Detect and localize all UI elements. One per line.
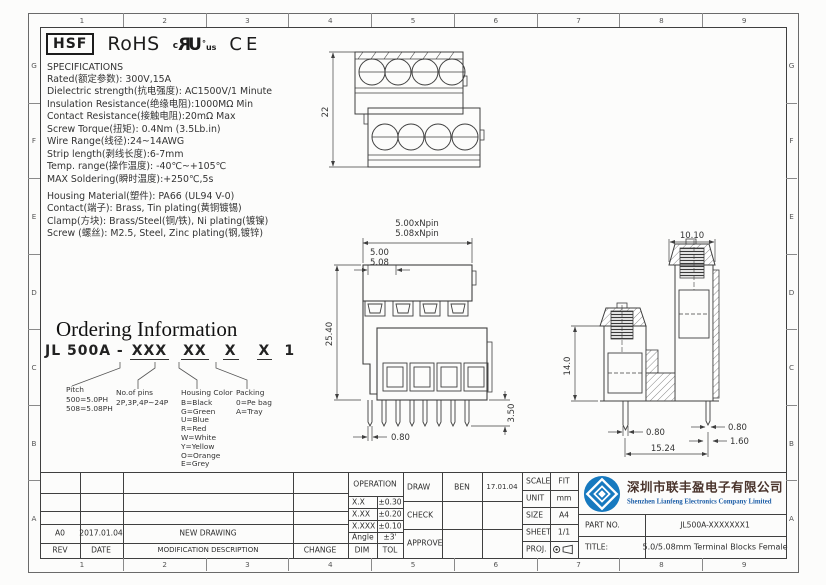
front-view-drawing: 5.00xNpin 5.08xNpin 5.00 5.08 [320, 216, 535, 471]
rev-value: A0 [55, 529, 65, 538]
pitch-legend-item: 508=5.08PH [66, 405, 113, 414]
tol-label: X.XXX [352, 522, 375, 531]
materials-list: Housing Material(塑件): PA66 (UL94 V-0)Con… [47, 191, 268, 241]
dim-top-height: 22 [321, 107, 331, 118]
grid-col-label: 2 [123, 13, 206, 27]
grid-col-label: 9 [702, 558, 785, 571]
ordering-legend-housing: Housing ColorB=BlackG=GreenU=BlueR=RedW=… [181, 389, 233, 469]
spec-line: MAX Soldering(瞬时温度):+250℃,5s [47, 174, 272, 186]
dim-footer: DIM [355, 546, 370, 555]
packing-legend-item: A=Tray [236, 408, 272, 417]
dim-side-row-pitch: 15.24 [651, 444, 675, 454]
grid-col-label: 5 [371, 13, 454, 27]
unit-label: UNIT [526, 494, 544, 503]
grid-col-label: 9 [702, 13, 785, 27]
ordering-title: Ordering Information [56, 317, 237, 342]
grid-row-label: G [28, 28, 40, 103]
dim-front-pin-length: 3.50 [507, 404, 517, 423]
grid-row-label: F [28, 103, 40, 179]
dim-pitch-total-1: 5.00xNpin [395, 219, 438, 229]
spec-line: Temp. range(操作温度): -40℃~+105℃ [47, 161, 272, 173]
tol-label: X.X [352, 498, 365, 507]
doc-title-label: TITLE: [585, 543, 608, 552]
doc-title-value: 5.0/5.08mm Terminal Blocks Female [643, 543, 788, 552]
spec-line: Screw Torque(扭矩): 0.4Nm (3.5Lb.in) [47, 124, 272, 136]
scale-label: SCALE [526, 477, 550, 486]
specifications-list: Rated(额定参数): 300V,15ADielectric strength… [47, 74, 272, 186]
grid-row-label: G [786, 28, 797, 103]
spec-line: Rated(额定参数): 300V,15A [47, 74, 272, 86]
grid-col-label: 7 [537, 13, 620, 27]
tol-value: ±0.30 [378, 498, 401, 507]
grid-col-label: 4 [288, 558, 371, 571]
spec-line: Strip length(剥线长度):6-7mm [47, 149, 272, 161]
tol-label: Angle [352, 533, 374, 542]
drawing-sheet: 123456789 123456789 GFEDCBA GFEDCBA HSF … [0, 0, 826, 585]
rev-header: REV [52, 546, 67, 555]
sheet-value: 1/1 [558, 528, 570, 537]
pitch-legend-title: Pitch [66, 386, 113, 395]
grid-col-label: 8 [619, 558, 702, 571]
rev-desc: NEW DRAWING [179, 529, 236, 538]
part-no-value: JL500A-XXXXXXX1 [680, 521, 750, 530]
ul-recognized-icon: cRU°us [173, 34, 217, 54]
grid-col-label: 6 [454, 558, 537, 571]
size-label: SIZE [526, 511, 543, 520]
company-logo [583, 475, 621, 513]
dim-pitch-1: 5.00 [370, 248, 389, 258]
housing-legend-title: Housing Color [181, 389, 233, 398]
ordering-legend-pitch: Pitch500=5.0PH508=5.08PH [66, 386, 113, 413]
hsf-logo: HSF [46, 33, 94, 55]
tolerance-title: OPERATION [353, 480, 396, 489]
spec-line: Dielectric strength(抗电强度): AC1500V/1 Min… [47, 86, 272, 98]
dim-pitch-2: 5.08 [370, 258, 389, 268]
grid-row-label: B [28, 405, 40, 481]
dim-side-height: 14.0 [563, 357, 573, 376]
sheet-label: SHEET [526, 528, 551, 537]
grid-ruler-left: GFEDCBA [28, 28, 40, 556]
material-line: Contact(端子): Brass, Tin plating(黄铜镀锡) [47, 203, 268, 215]
grid-ruler-bottom: 123456789 [41, 558, 785, 571]
ce-mark: CE [229, 34, 261, 55]
ordering-legend-pins: No.of pins2P,3P,4P~24P [116, 389, 168, 408]
pins-legend-title: No.of pins [116, 389, 168, 398]
rev-date: 2017.01.04 [79, 529, 122, 538]
draw-label: DRAW [407, 483, 430, 492]
top-view-drawing: 22 [320, 32, 486, 174]
grid-col-label: 7 [537, 558, 620, 571]
certification-marks: HSF RoHS cRU°us CE [46, 33, 261, 55]
grid-col-label: 5 [371, 558, 454, 571]
company-name-cn: 深圳市联丰盈电子有限公司 [627, 477, 783, 496]
change-header: CHANGE [304, 546, 337, 555]
size-value: A4 [559, 511, 569, 520]
material-line: Clamp(方块): Brass/Steel(铜/铁), Ni plating(… [47, 216, 268, 228]
grid-col-label: 1 [41, 558, 123, 571]
ordering-legend-packing: Packing0=Pe bagA=Tray [236, 389, 272, 416]
pins-legend-item: 2P,3P,4P~24P [116, 399, 168, 408]
grid-ruler-top: 123456789 [41, 13, 785, 27]
material-line: Screw (螺丝): M2.5, Steel, Zinc plating(钢,… [47, 228, 268, 240]
dim-pitch-total-2: 5.08xNpin [395, 229, 438, 239]
projection-symbol-icon [552, 544, 576, 555]
date-header: DATE [91, 546, 111, 555]
grid-col-label: 1 [41, 13, 123, 27]
grid-row-label: F [786, 103, 797, 179]
tol-value: ±0.20 [378, 510, 401, 519]
tol-footer: TOL [383, 546, 398, 555]
grid-row-label: A [786, 480, 797, 556]
dim-front-pin-width: 0.80 [391, 433, 410, 443]
grid-col-label: 4 [288, 13, 371, 27]
modification-header: MODIFICATION DESCRIPTION [158, 546, 259, 554]
draw-date: 17.01.04 [486, 483, 517, 491]
dim-side-pin-right: 0.80 [728, 423, 747, 433]
draw-name: BEN [454, 483, 470, 492]
dim-side-top-width: 10.10 [680, 231, 704, 241]
approve-label: APPROVE [407, 539, 442, 548]
tol-label: X.XX [352, 510, 370, 519]
part-no-label: PART NO. [585, 521, 620, 530]
spec-line: Contact Resistance(接触电阻):20mΩ Max [47, 111, 272, 123]
grid-col-label: 6 [454, 13, 537, 27]
dim-side-pin-thickness: 1.60 [730, 437, 749, 447]
scale-value: FIT [558, 477, 569, 486]
grid-row-label: E [28, 178, 40, 254]
grid-col-label: 3 [206, 558, 289, 571]
proj-label: PROJ. [526, 545, 547, 554]
side-view-drawing: 10.10 [563, 226, 793, 461]
material-line: Housing Material(塑件): PA66 (UL94 V-0) [47, 191, 268, 203]
title-block: A0 2017.01.04 NEW DRAWING REV DATE MODIF… [40, 472, 786, 558]
dim-front-height: 25.40 [325, 322, 335, 346]
unit-value: mm [557, 494, 572, 503]
housing-legend-item: E=Grey [181, 460, 233, 469]
grid-row-label: A [28, 480, 40, 556]
specifications-title: SPECIFICATIONS [47, 62, 123, 74]
tol-value: ±3' [383, 533, 396, 542]
tol-value: ±0.10 [378, 522, 401, 531]
grid-row-label: D [28, 254, 40, 330]
grid-col-label: 8 [619, 13, 702, 27]
company-name-en: Shenzhen Lianfeng Electronics Company Li… [627, 499, 772, 506]
dim-side-pin-left: 0.80 [646, 428, 665, 438]
check-label: CHECK [407, 511, 433, 520]
grid-col-label: 3 [206, 13, 289, 27]
rohs-mark: RoHS [107, 33, 159, 55]
grid-col-label: 2 [123, 558, 206, 571]
packing-legend-title: Packing [236, 389, 272, 398]
grid-row-label: C [28, 329, 40, 405]
spec-line: Insulation Resistance(绝缘电阻):1000MΩ Min [47, 99, 272, 111]
spec-line: Wire Range(线径):24~14AWG [47, 136, 272, 148]
